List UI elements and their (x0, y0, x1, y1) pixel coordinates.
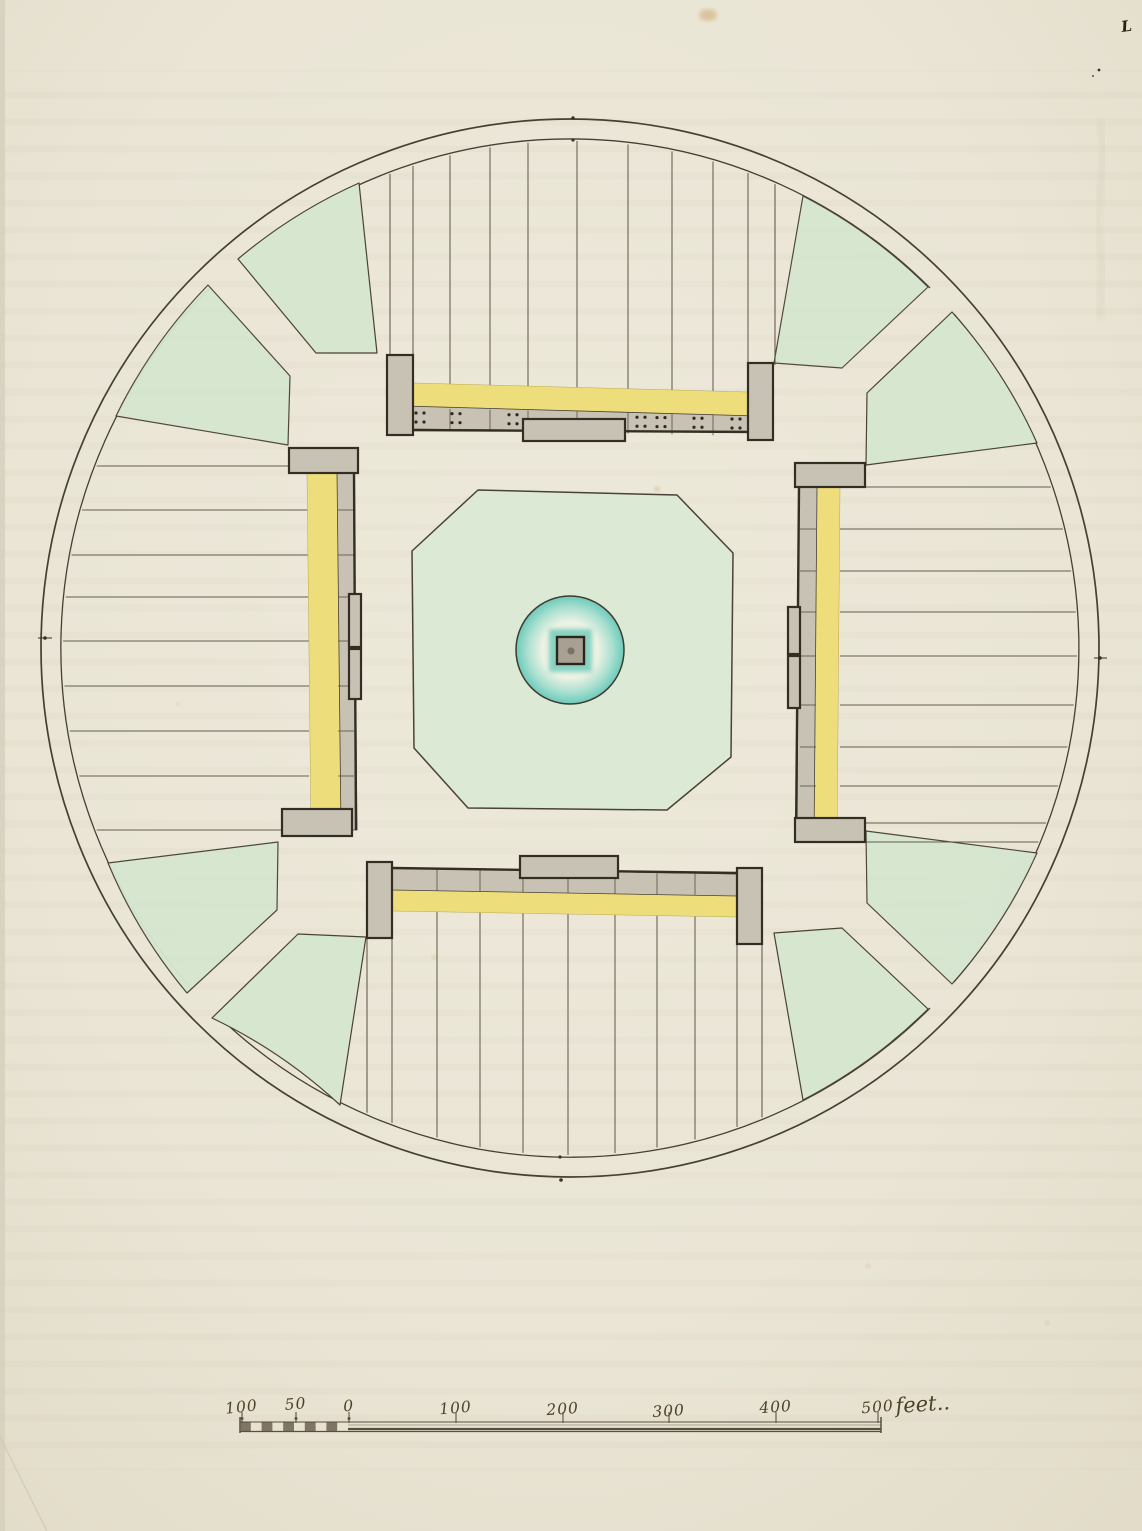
column-dot (422, 411, 425, 414)
pier-south-left (367, 862, 392, 938)
scale-label-50: 50 (284, 1394, 307, 1414)
scale-label-300: 300 (652, 1401, 686, 1421)
pier-east-top (795, 463, 865, 487)
column-dot (738, 426, 741, 429)
scale-label-0: 0 (343, 1397, 355, 1416)
manuscript-page: 100 50 0 100 200 300 400 500 feet.. L (0, 0, 1142, 1531)
column-dot (663, 425, 666, 428)
scale-label-100r: 100 (439, 1398, 473, 1419)
pier-west-top (289, 448, 358, 473)
pier-east-mid-b (788, 656, 800, 708)
pier-west-bottom (282, 809, 352, 836)
central-basin (516, 596, 624, 704)
column-dot (643, 416, 646, 419)
scale-subdivision-block (283, 1423, 294, 1432)
gallery-band-east (814, 487, 840, 842)
pier-east-mid-a (788, 607, 800, 654)
scale-subdivision-block (326, 1423, 337, 1432)
scale-label-400: 400 (758, 1397, 793, 1417)
pier-west-mid-a (349, 594, 361, 647)
column-dot (635, 416, 638, 419)
pedestal-core (567, 647, 574, 654)
pier-north-right (748, 363, 773, 440)
column-dot (730, 417, 733, 420)
column-dot (700, 426, 703, 429)
scale-tick-dot (348, 1418, 350, 1420)
scale-subdivision-block (305, 1423, 316, 1432)
pier-south-middle (520, 856, 618, 878)
scale-label-100l: 100 (224, 1396, 258, 1417)
page-left-edge (0, 0, 5, 1531)
column-dot (515, 413, 518, 416)
column-dot (738, 417, 741, 420)
scale-subdivision-block (262, 1423, 273, 1432)
pier-east-bottom (795, 818, 865, 842)
column-dot (414, 411, 417, 414)
column-dot (643, 425, 646, 428)
column-dot (700, 417, 703, 420)
column-dot (655, 425, 658, 428)
column-dot (515, 422, 518, 425)
column-dot (458, 412, 461, 415)
column-dot (507, 422, 510, 425)
column-dot (635, 425, 638, 428)
column-dot (450, 412, 453, 415)
scale-tick-dot (295, 1418, 297, 1420)
column-dot (458, 421, 461, 424)
amphitheatre-plan-drawing: 100 50 0 100 200 300 400 500 feet.. L (0, 0, 1142, 1531)
gallery-band-west (307, 472, 341, 830)
column-dot (450, 421, 453, 424)
pier-north-middle (523, 419, 625, 441)
scale-label-500: 500 (861, 1397, 895, 1418)
column-dot (655, 416, 658, 419)
column-dot (507, 413, 510, 416)
column-dot (730, 426, 733, 429)
column-dot (692, 417, 695, 420)
column-dot (414, 420, 417, 423)
pier-west-mid-b (349, 649, 361, 699)
column-dot (692, 426, 695, 429)
pier-south-right (737, 868, 762, 944)
scale-tick-dot (241, 1418, 243, 1420)
scale-subdivision-block (240, 1423, 251, 1432)
scale-label-200: 200 (545, 1399, 580, 1419)
column-dot (663, 416, 666, 419)
column-dot (422, 420, 425, 423)
scale-unit-label: feet.. (893, 1390, 951, 1418)
pier-north-left (387, 355, 413, 435)
